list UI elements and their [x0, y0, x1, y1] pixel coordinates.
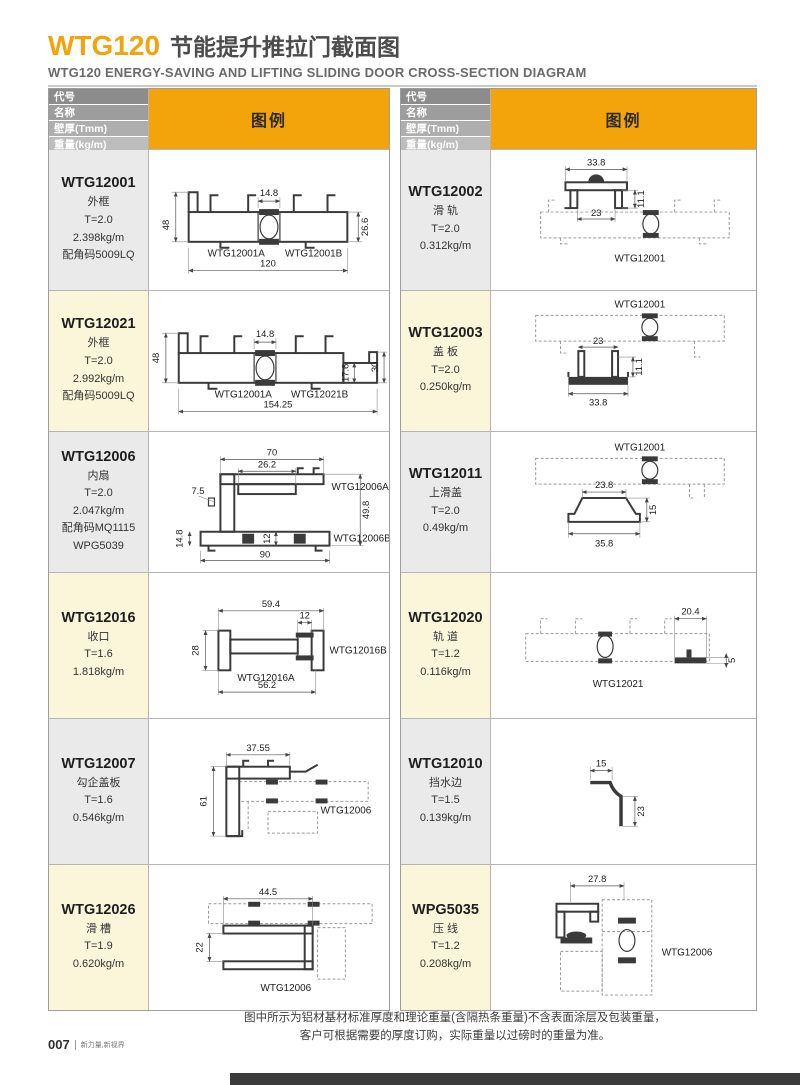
- dim-label: 70: [267, 446, 277, 457]
- profile-weight: 0.312kg/m: [420, 238, 471, 256]
- profile-weight: 0.546kg/m: [73, 810, 124, 828]
- dimensions: 37.55 61: [198, 742, 290, 836]
- dim-label: 15: [596, 758, 606, 769]
- profile-diagram-cell: 70 26.2 7.5 14.8 12 49.8: [149, 432, 389, 572]
- part-label: WTG12006: [321, 805, 372, 816]
- dim-label: 49.8: [360, 501, 371, 519]
- profile-thickness: T=1.6: [84, 792, 112, 810]
- part-label: WTG12001: [615, 254, 666, 265]
- profile-weight: 0.139kg/m: [420, 810, 471, 828]
- profile-code: WTG12006: [61, 449, 135, 465]
- profile-name: 盖 板: [433, 344, 458, 362]
- footer-tagline: 新力量,新视界: [81, 1040, 125, 1050]
- profile-name: 滑 槽: [86, 921, 111, 939]
- profile-info: WTG12002 滑 轨 T=2.0 0.312kg/m: [401, 150, 491, 290]
- dim-label: 14.8: [260, 187, 278, 198]
- header-thickness: 壁厚(Tmm): [401, 121, 490, 137]
- part-label: WTG12006B: [333, 534, 389, 545]
- profile-code: WPG5035: [412, 902, 479, 918]
- page-title: WTG120 节能提升推拉门截面图: [48, 28, 757, 62]
- profile-thickness: T=2.0: [431, 503, 459, 521]
- profile-code: WTG12001: [61, 175, 135, 191]
- dim-label: 12: [261, 533, 272, 543]
- profile-thickness: T=2.0: [431, 221, 459, 239]
- profile-info: WTG12016 收口 T=1.6 1.818kg/m: [49, 573, 149, 718]
- profile-code: WTG12002: [408, 184, 482, 200]
- title-english: WTG120 ENERGY-SAVING AND LIFTING SLIDING…: [48, 65, 757, 80]
- dim-label: 37.55: [246, 742, 270, 753]
- dimensions: 23 11.1 33.8: [568, 335, 643, 408]
- profile-code: WTG12016: [61, 610, 135, 626]
- profile-info: WTG12006 内扇 T=2.0 2.047kg/m 配角码MQ1115 WP…: [49, 432, 149, 572]
- profile-info: WPG5035 压 线 T=1.2 0.208kg/m: [401, 865, 491, 1010]
- table-row: WTG12020 轨 道 T=1.2 0.116kg/m: [401, 572, 756, 718]
- dim-label: 27.8: [588, 873, 606, 884]
- profile-info: WTG12021 外框 T=2.0 2.992kg/m 配角码5009LQ: [49, 291, 149, 431]
- page-number: 007: [48, 1037, 70, 1052]
- profile-name: 滑 轨: [433, 203, 458, 221]
- header-labels: 代号 名称 壁厚(Tmm) 重量(kg/m): [49, 89, 149, 149]
- page-footer: 007 新力量,新视界: [48, 1037, 125, 1052]
- table-row: WTG12001 外框 T=2.0 2.398kg/m 配角码5009LQ: [49, 149, 389, 290]
- profile-code: WTG12011: [409, 466, 482, 482]
- diagram-wtg12011: WTG12001 23.8: [491, 432, 756, 572]
- diagram-wtg12001: 48 14.8 26.6 120 WTG12001A WTG12001B: [149, 150, 389, 290]
- profile-thickness: T=1.2: [431, 646, 459, 664]
- table-row: WTG12021 外框 T=2.0 2.992kg/m 配角码5009LQ: [49, 290, 389, 431]
- profile-weight: 2.992kg/m: [73, 371, 124, 389]
- dim-label: 48: [160, 220, 171, 230]
- profile-info: WTG12007 勾企盖板 T=1.6 0.546kg/m: [49, 719, 149, 864]
- part-label: WTG12001B: [285, 249, 343, 260]
- profile-name: 外框: [88, 194, 110, 212]
- profile-name: 压 线: [433, 921, 458, 939]
- profile-weight: 0.208kg/m: [420, 956, 471, 974]
- profile-shape: [675, 649, 707, 663]
- profile-diagram-cell: 48 14.8 17.6 30 154.25 WTG12001A: [149, 291, 389, 431]
- dim-label: 61: [198, 796, 209, 806]
- context-profile: [536, 313, 725, 357]
- profile-weight: 0.49kg/m: [423, 520, 468, 538]
- profile-thickness: T=2.0: [84, 212, 112, 230]
- dim-label: 5: [726, 658, 737, 663]
- profile-note: 配角码5009LQ: [62, 247, 134, 265]
- profile-shape: [189, 192, 348, 248]
- diagram-wtg12007: 37.55 61 WTG12006: [149, 719, 389, 864]
- profile-info: WTG12020 轨 道 T=1.2 0.116kg/m: [401, 573, 491, 718]
- header-labels: 代号 名称 壁厚(Tmm) 重量(kg/m): [401, 89, 491, 149]
- profile-name: 收口: [88, 629, 110, 647]
- table-row: WTG12006 内扇 T=2.0 2.047kg/m 配角码MQ1115 WP…: [49, 431, 389, 572]
- dim-label: 26.2: [258, 458, 276, 469]
- dim-label: 11.1: [633, 358, 644, 376]
- profile-thickness: T=2.0: [431, 362, 459, 380]
- profile-diagram-cell: 48 14.8 26.6 120 WTG12001A WTG12001B: [149, 150, 389, 290]
- profile-weight: 2.047kg/m: [73, 503, 124, 521]
- profile-code: WTG12007: [61, 756, 135, 772]
- dim-label: 33.8: [587, 156, 605, 167]
- table-row: WPG5035 压 线 T=1.2 0.208kg/m: [401, 864, 756, 1010]
- footnote-line1: 图中所示为铝材基材标准厚度和理论重量(含隔热条重量)不含表面涂层及包装重量，: [120, 1010, 790, 1028]
- header-legend: 图例: [149, 89, 389, 149]
- profile-info: WTG12010 挡水边 T=1.5 0.139kg/m: [401, 719, 491, 864]
- profile-shape: [590, 783, 621, 827]
- table-header: 代号 名称 壁厚(Tmm) 重量(kg/m) 图例: [49, 89, 389, 149]
- profile-diagram-cell: 59.4 12 28 56.2 WTG12016A WTG12016B: [149, 573, 389, 718]
- profile-name: 轨 道: [433, 629, 458, 647]
- profile-note: WPG5039: [73, 538, 124, 556]
- profile-shape: [557, 904, 599, 944]
- context-profile: [526, 619, 710, 664]
- profile-name: 勾企盖板: [77, 775, 121, 793]
- part-label: WTG12006A: [331, 482, 389, 493]
- profile-weight: 0.116kg/m: [420, 664, 471, 682]
- profile-name: 外框: [88, 335, 110, 353]
- profile-thickness: T=2.0: [84, 353, 112, 371]
- profile-code: WTG12026: [61, 902, 135, 918]
- header-name: 名称: [49, 105, 148, 121]
- dim-label: 17.6: [339, 364, 350, 382]
- profile-info: WTG12011 上滑盖 T=2.0 0.49kg/m: [401, 432, 491, 572]
- dimensions: 15 23: [590, 758, 646, 827]
- diagram-wtg12002: 33.8 11.1 23 WTG12001: [491, 150, 756, 290]
- profile-info: WTG12026 滑 槽 T=1.9 0.620kg/m: [49, 865, 149, 1010]
- page-header: WTG120 节能提升推拉门截面图 WTG120 ENERGY-SAVING A…: [48, 28, 757, 87]
- profile-weight: 0.250kg/m: [420, 379, 471, 397]
- context-profile: [560, 900, 651, 995]
- diagram-wpg5035: 27.8 WTG12006: [491, 865, 756, 1010]
- table-row: WTG12002 滑 轨 T=2.0 0.312kg/m: [401, 149, 756, 290]
- dim-label: 22: [194, 942, 205, 952]
- profile-table-right: 代号 名称 壁厚(Tmm) 重量(kg/m) 图例 WTG12002 滑 轨 T…: [400, 88, 757, 1011]
- dim-label: 14.8: [174, 530, 185, 548]
- dim-label: 23.8: [595, 479, 613, 490]
- profile-diagram-cell: WTG12001: [491, 291, 756, 431]
- table-header: 代号 名称 壁厚(Tmm) 重量(kg/m) 图例: [401, 89, 756, 149]
- dim-label: 33.8: [589, 397, 607, 408]
- table-row: WTG12016 收口 T=1.6 1.818kg/m: [49, 572, 389, 718]
- dim-label: 11.1: [635, 190, 646, 208]
- part-label: WTG12006: [261, 983, 312, 994]
- profile-thickness: T=1.5: [431, 792, 459, 810]
- dim-label: 28: [190, 645, 201, 655]
- header-divider: [48, 85, 757, 87]
- footer-divider: [75, 1040, 76, 1050]
- part-label: WTG12006: [662, 947, 713, 958]
- profile-name: 挡水边: [429, 775, 462, 793]
- profile-thickness: T=1.6: [84, 646, 112, 664]
- header-legend: 图例: [491, 89, 756, 149]
- table-row: WTG12007 勾企盖板 T=1.6 0.546kg/m: [49, 718, 389, 864]
- dim-label: 30: [369, 362, 380, 372]
- title-chinese: 节能提升推拉门截面图: [170, 28, 400, 62]
- diagram-wtg12006: 70 26.2 7.5 14.8 12 49.8: [149, 432, 389, 572]
- part-label: WTG12001A: [215, 390, 273, 401]
- profile-code: WTG12003: [408, 325, 482, 341]
- dimensions: 27.8: [570, 873, 624, 902]
- profile-diagram-cell: 33.8 11.1 23 WTG12001: [491, 150, 756, 290]
- profile-code: WTG12021: [61, 316, 135, 332]
- profile-diagram-cell: 15 23: [491, 719, 756, 864]
- part-label: WTG12001: [615, 442, 666, 453]
- footnote-line2: 客户可根据需要的厚度订购，实际重量以过磅时的重量为准。: [120, 1028, 790, 1046]
- table-row: WTG12003 盖 板 T=2.0 0.250kg/m WTG12001: [401, 290, 756, 431]
- part-label: WTG12001: [615, 299, 666, 310]
- diagram-wtg12010: 15 23: [491, 719, 756, 864]
- profile-diagram-cell: 27.8 WTG12006: [491, 865, 756, 1010]
- profile-info: WTG12001 外框 T=2.0 2.398kg/m 配角码5009LQ: [49, 150, 149, 290]
- profile-code: WTG12020: [408, 610, 482, 626]
- header-thickness: 壁厚(Tmm): [49, 121, 148, 137]
- header-code: 代号: [49, 89, 148, 105]
- part-label: WTG12021B: [291, 390, 349, 401]
- profile-shape: [226, 761, 317, 836]
- dim-label: 7.5: [191, 485, 204, 496]
- profile-shape: [564, 174, 628, 208]
- profile-diagram-cell: 37.55 61 WTG12006: [149, 719, 389, 864]
- profile-weight: 0.620kg/m: [73, 956, 124, 974]
- header-name: 名称: [401, 105, 490, 121]
- profile-diagram-cell: WTG12001 23.8: [491, 432, 756, 572]
- dim-label: 12: [299, 610, 309, 621]
- dimensions: 23.8 15 35.8: [568, 479, 657, 549]
- header-code: 代号: [401, 89, 490, 105]
- profile-name: 内扇: [88, 468, 110, 486]
- profile-weight: 2.398kg/m: [73, 230, 124, 248]
- dimensions: 48 14.8 17.6 30 154.25: [150, 328, 387, 414]
- profile-shape: [223, 926, 312, 970]
- profile-tables: 代号 名称 壁厚(Tmm) 重量(kg/m) 图例 WTG12001 外框 T=…: [48, 88, 757, 1011]
- diagram-wtg12003: WTG12001: [491, 291, 756, 431]
- profile-code: WTG12010: [408, 756, 482, 772]
- dim-label: 23: [591, 207, 601, 218]
- dim-label: 15: [647, 505, 658, 515]
- profile-thickness: T=1.2: [431, 938, 459, 956]
- profile-note: 配角码5009LQ: [62, 388, 134, 406]
- table-row: WTG12011 上滑盖 T=2.0 0.49kg/m WTG12001: [401, 431, 756, 572]
- part-label: WTG12001A: [208, 249, 266, 260]
- part-label: WTG12016B: [329, 645, 387, 656]
- footnote: 图中所示为铝材基材标准厚度和理论重量(含隔热条重量)不含表面涂层及包装重量， 客…: [120, 1010, 790, 1046]
- title-series-code: WTG120: [48, 30, 160, 62]
- profile-shape: [568, 351, 628, 385]
- diagram-wtg12021: 48 14.8 17.6 30 154.25 WTG12001A: [149, 291, 389, 431]
- diagram-wtg12026: 44.5 22 WTG12006: [149, 865, 389, 1010]
- dim-label: 90: [260, 549, 270, 560]
- context-profile: [536, 456, 725, 498]
- bottom-bar: [230, 1073, 800, 1085]
- part-label: WTG12021: [593, 679, 644, 690]
- dim-label: 59.4: [262, 598, 280, 609]
- dim-label: 48: [150, 353, 161, 363]
- table-row: WTG12010 挡水边 T=1.5 0.139kg/m 15: [401, 718, 756, 864]
- dimensions: 48 14.8 26.6 120: [160, 187, 370, 273]
- context-profile: [209, 902, 373, 979]
- profile-name: 上滑盖: [429, 485, 462, 503]
- profile-diagram-cell: 20.4 5 WTG12021: [491, 573, 756, 718]
- profile-info: WTG12003 盖 板 T=2.0 0.250kg/m: [401, 291, 491, 431]
- profile-shape: [218, 631, 323, 671]
- dim-label: 14.8: [256, 328, 274, 339]
- profile-shape: [568, 498, 639, 522]
- dim-label: 26.6: [359, 218, 370, 236]
- dim-label: 23: [635, 806, 646, 816]
- diagram-wtg12016: 59.4 12 28 56.2 WTG12016A WTG12016B: [149, 573, 389, 718]
- dim-label: 20.4: [681, 606, 699, 617]
- diagram-wtg12020: 20.4 5 WTG12021: [491, 573, 756, 718]
- profile-note: 配角码MQ1115: [62, 520, 136, 538]
- profile-thickness: T=2.0: [84, 485, 112, 503]
- table-row: WTG12026 滑 槽 T=1.9 0.620kg/m: [49, 864, 389, 1010]
- dim-label: 23: [593, 335, 603, 346]
- part-label: WTG12016A: [237, 673, 295, 684]
- dim-label: 35.8: [595, 538, 613, 549]
- dim-label: 44.5: [259, 886, 277, 897]
- profile-thickness: T=1.9: [84, 938, 112, 956]
- profile-diagram-cell: 44.5 22 WTG12006: [149, 865, 389, 1010]
- profile-weight: 1.818kg/m: [73, 664, 124, 682]
- profile-table-left: 代号 名称 壁厚(Tmm) 重量(kg/m) 图例 WTG12001 外框 T=…: [48, 88, 390, 1011]
